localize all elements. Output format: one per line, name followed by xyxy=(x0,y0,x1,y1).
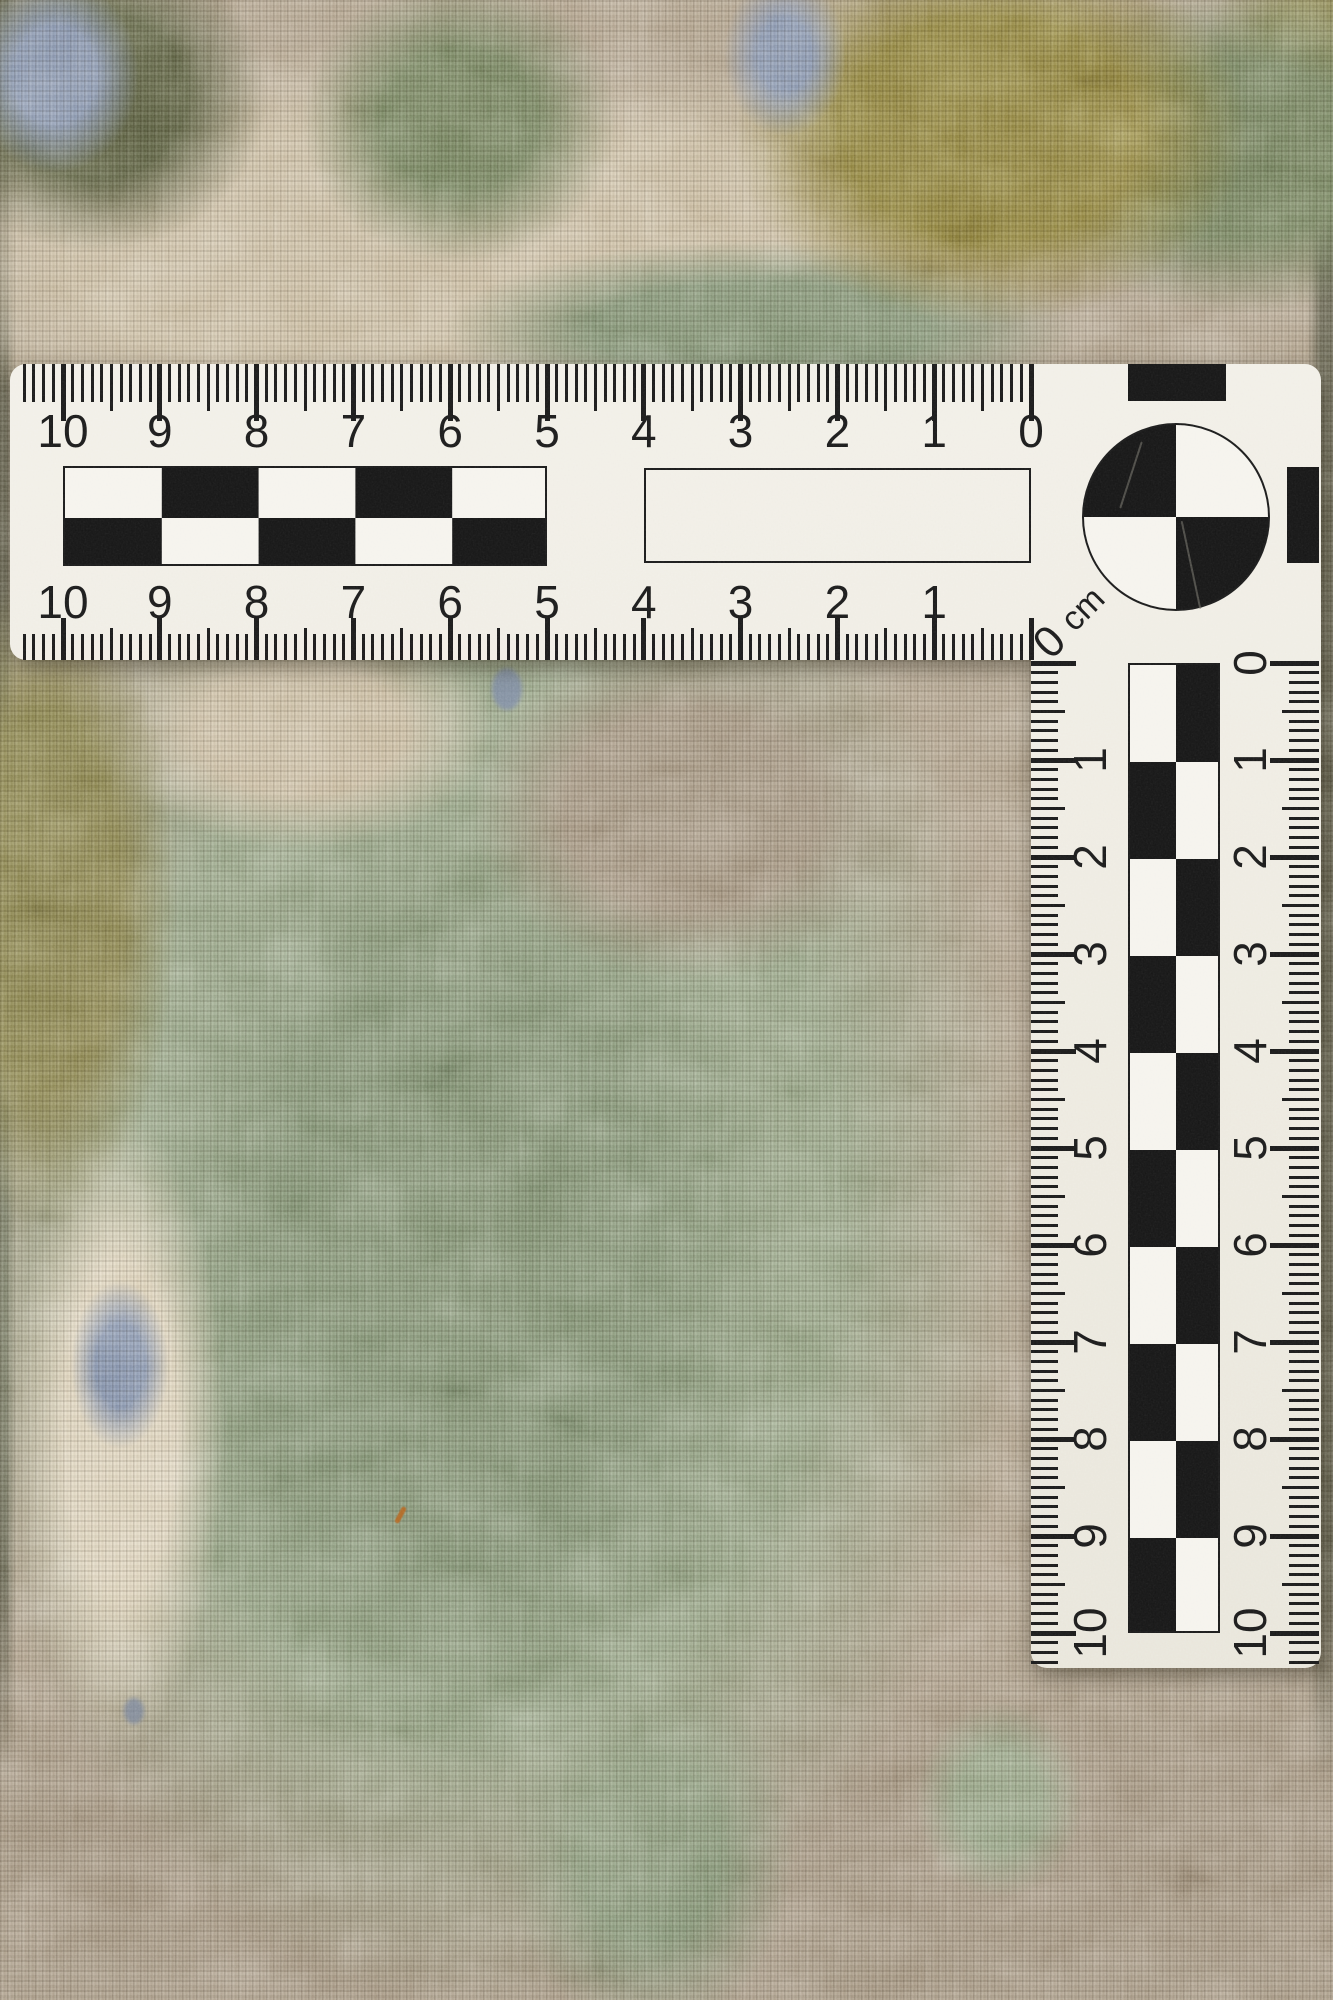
h-top-tick xyxy=(575,364,578,402)
h-bottom-tick xyxy=(207,628,210,660)
h-bottom-tick xyxy=(865,634,868,660)
v-left-tick xyxy=(1031,1176,1058,1179)
h-bottom-tick xyxy=(691,628,694,660)
photo-scene: 0 cm 10987654321010987654321123456789100… xyxy=(0,0,1333,2000)
h-top-tick xyxy=(623,364,626,402)
h-top-tick xyxy=(671,364,674,402)
h-top-tick xyxy=(788,364,791,411)
h-top-tick xyxy=(23,364,26,402)
h-bottom-number: 4 xyxy=(631,579,657,625)
h-top-number: 10 xyxy=(37,408,88,454)
h-bottom-tick xyxy=(788,628,791,660)
h-top-tick xyxy=(178,364,181,402)
v-left-tick xyxy=(1031,943,1058,946)
v-right-tick xyxy=(1282,1583,1319,1586)
v-left-tick xyxy=(1031,1525,1058,1528)
v-right-tick xyxy=(1289,923,1319,926)
h-top-tick xyxy=(168,364,171,402)
h-bottom-number: 7 xyxy=(341,579,367,625)
h-bottom-tick xyxy=(216,634,219,660)
h-top-tick xyxy=(207,364,210,411)
v-right-tick xyxy=(1289,1166,1319,1169)
h-bottom-tick xyxy=(875,634,878,660)
v-right-tick xyxy=(1289,1457,1319,1460)
h-top-tick xyxy=(817,364,820,402)
h-top-tick xyxy=(226,364,229,402)
v-right-tick xyxy=(1289,1176,1319,1179)
h-bottom-number: 1 xyxy=(921,579,947,625)
h-bottom-tick xyxy=(507,634,510,660)
v-right-tick xyxy=(1289,1059,1319,1062)
h-bottom-number: 2 xyxy=(825,579,851,625)
v-right-tick xyxy=(1289,1602,1319,1605)
h-top-number: 1 xyxy=(921,408,947,454)
h-bottom-tick xyxy=(516,634,519,660)
v-right-tick xyxy=(1289,1127,1319,1130)
h-bottom-tick xyxy=(71,634,74,660)
v-left-number: 6 xyxy=(1067,1232,1113,1258)
v-left-tick xyxy=(1031,1515,1058,1518)
h-top-tick xyxy=(507,364,510,402)
v-left-tick xyxy=(1031,700,1058,703)
h-bottom-tick xyxy=(149,634,152,660)
h-bottom-tick xyxy=(110,628,113,660)
h-top-tick xyxy=(565,364,568,402)
v-left-tick xyxy=(1031,778,1058,781)
v-left-tick xyxy=(1031,1554,1058,1557)
v-right-tick xyxy=(1289,836,1319,839)
v-right-number: 9 xyxy=(1227,1523,1273,1549)
h-bottom-tick xyxy=(391,634,394,660)
v-right-tick xyxy=(1282,1098,1319,1101)
v-left-tick xyxy=(1031,885,1058,888)
h-top-tick xyxy=(526,364,529,402)
h-top-tick xyxy=(604,364,607,402)
h-bottom-number: 10 xyxy=(37,579,88,625)
h-bottom-tick xyxy=(410,634,413,660)
v-right-tick xyxy=(1289,1408,1319,1411)
h-top-tick xyxy=(1000,364,1003,402)
v-right-number: 2 xyxy=(1227,844,1273,870)
v-right-tick xyxy=(1289,1108,1319,1111)
v-right-tick xyxy=(1289,700,1319,703)
v-right-tick xyxy=(1270,1437,1319,1442)
v-left-tick xyxy=(1031,972,1058,975)
h-top-tick xyxy=(913,364,916,402)
v-left-tick xyxy=(1031,1651,1058,1654)
v-left-tick xyxy=(1031,1622,1058,1625)
h-top-tick xyxy=(729,364,732,402)
v-left-tick xyxy=(1031,1350,1058,1353)
right-edge-calibration-rectangle xyxy=(1287,467,1319,563)
h-bottom-tick xyxy=(633,634,636,660)
h-bottom-tick xyxy=(623,634,626,660)
v-left-tick xyxy=(1031,768,1058,771)
v-right-tick xyxy=(1289,749,1319,752)
h-top-tick xyxy=(691,364,694,411)
h-bottom-tick xyxy=(236,634,239,660)
v-right-tick xyxy=(1282,1001,1319,1004)
v-left-tick xyxy=(1031,1127,1058,1130)
empty-outline-box xyxy=(644,468,1031,563)
h-top-tick xyxy=(32,364,35,402)
v-right-tick xyxy=(1270,1049,1319,1054)
h-bottom-tick xyxy=(778,634,781,660)
v-left-tick xyxy=(1031,788,1058,791)
v-right-tick xyxy=(1289,1593,1319,1596)
v-left-tick xyxy=(1031,1302,1058,1305)
v-right-number: 5 xyxy=(1227,1135,1273,1161)
h-bottom-tick xyxy=(981,628,984,660)
h-bottom-tick xyxy=(536,634,539,660)
h-bottom-tick xyxy=(962,634,965,660)
v-left-tick xyxy=(1031,1117,1058,1120)
v-left-tick xyxy=(1031,1408,1058,1411)
h-bottom-tick xyxy=(400,628,403,660)
v-right-tick xyxy=(1289,1205,1319,1208)
v-right-tick xyxy=(1289,1651,1319,1654)
h-bottom-tick xyxy=(91,634,94,660)
h-bottom-tick xyxy=(952,634,955,660)
v-right-tick xyxy=(1289,875,1319,878)
h-bottom-tick xyxy=(575,634,578,660)
v-right-tick xyxy=(1289,778,1319,781)
h-top-tick xyxy=(633,364,636,402)
h-top-tick xyxy=(778,364,781,402)
h-top-tick xyxy=(613,364,616,402)
h-top-tick xyxy=(942,364,945,402)
h-bottom-tick xyxy=(1020,634,1023,660)
v-right-tick xyxy=(1289,720,1319,723)
v-right-tick xyxy=(1289,826,1319,829)
v-right-tick xyxy=(1289,1447,1319,1450)
v-right-tick xyxy=(1289,1282,1319,1285)
v-right-tick xyxy=(1289,1321,1319,1324)
v-right-tick xyxy=(1289,1496,1319,1499)
h-bottom-tick xyxy=(904,634,907,660)
v-right-number: 6 xyxy=(1227,1232,1273,1258)
h-top-number: 0 xyxy=(1018,408,1044,454)
h-bottom-tick xyxy=(342,634,345,660)
v-left-tick xyxy=(1031,1011,1058,1014)
v-left-tick xyxy=(1031,836,1058,839)
h-top-tick xyxy=(381,364,384,402)
v-left-tick xyxy=(1031,1263,1058,1266)
v-left-tick xyxy=(1031,661,1076,666)
h-bottom-tick xyxy=(971,634,974,660)
h-bottom-tick xyxy=(478,634,481,660)
v-left-number: 2 xyxy=(1067,844,1113,870)
v-right-tick xyxy=(1282,710,1319,713)
v-right-tick xyxy=(1289,1137,1319,1140)
h-top-tick xyxy=(458,364,461,402)
v-left-number: 1 xyxy=(1067,747,1113,773)
h-bottom-tick xyxy=(584,634,587,660)
v-left-tick xyxy=(1031,1292,1065,1295)
h-bottom-tick xyxy=(139,634,142,660)
v-right-tick xyxy=(1270,1146,1319,1151)
h-top-tick xyxy=(758,364,761,402)
h-top-tick xyxy=(720,364,723,402)
v-right-tick xyxy=(1289,914,1319,917)
v-right-tick xyxy=(1289,1360,1319,1363)
h-top-tick xyxy=(120,364,123,402)
h-top-tick xyxy=(274,364,277,402)
v-right-tick xyxy=(1289,817,1319,820)
v-right-tick xyxy=(1270,1631,1319,1636)
h-top-tick xyxy=(497,364,500,411)
h-top-tick xyxy=(371,364,374,402)
v-left-tick xyxy=(1031,1224,1058,1227)
v-right-tick xyxy=(1289,1088,1319,1091)
v-left-tick xyxy=(1031,904,1065,907)
h-top-tick xyxy=(904,364,907,402)
v-right-tick xyxy=(1289,1525,1319,1528)
v-left-tick xyxy=(1031,729,1058,732)
v-left-number: 5 xyxy=(1067,1135,1113,1161)
vertical-checkerboard-band xyxy=(1128,663,1220,1633)
v-right-tick xyxy=(1289,1564,1319,1567)
v-left-tick xyxy=(1031,710,1065,713)
h-top-tick xyxy=(516,364,519,402)
h-bottom-tick xyxy=(604,634,607,660)
v-left-number: 3 xyxy=(1067,941,1113,967)
v-left-tick xyxy=(1031,1593,1058,1596)
v-right-tick xyxy=(1289,1399,1319,1402)
h-top-tick xyxy=(797,364,800,402)
v-left-tick xyxy=(1031,1573,1058,1576)
v-right-tick xyxy=(1282,1389,1319,1392)
v-left-tick xyxy=(1031,1564,1058,1567)
v-left-tick xyxy=(1031,1214,1058,1217)
v-left-tick xyxy=(1031,826,1058,829)
v-left-tick xyxy=(1031,1360,1058,1363)
v-right-tick xyxy=(1289,1515,1319,1518)
v-left-tick xyxy=(1031,681,1058,684)
v-right-tick xyxy=(1289,1476,1319,1479)
v-right-tick xyxy=(1289,894,1319,897)
h-top-tick xyxy=(52,364,55,402)
v-left-tick xyxy=(1031,1185,1058,1188)
h-top-tick xyxy=(710,364,713,402)
h-top-tick xyxy=(391,364,394,402)
h-top-tick xyxy=(681,364,684,402)
h-bottom-tick xyxy=(178,634,181,660)
v-left-number: 4 xyxy=(1067,1038,1113,1064)
h-top-tick xyxy=(884,364,887,411)
h-bottom-number: 8 xyxy=(244,579,270,625)
h-bottom-number: 6 xyxy=(437,579,463,625)
h-bottom-tick xyxy=(594,628,597,660)
h-bottom-tick xyxy=(274,634,277,660)
h-top-tick xyxy=(875,364,878,402)
v-right-tick xyxy=(1282,904,1319,907)
v-right-tick xyxy=(1270,1534,1319,1539)
v-left-tick xyxy=(1031,1205,1058,1208)
v-left-tick xyxy=(1031,1467,1058,1470)
h-top-tick xyxy=(584,364,587,402)
h-bottom-tick xyxy=(100,634,103,660)
v-right-tick xyxy=(1270,855,1319,860)
h-bottom-tick xyxy=(894,634,897,660)
h-bottom-tick xyxy=(565,634,568,660)
h-bottom-tick xyxy=(913,634,916,660)
h-top-tick xyxy=(700,364,703,402)
h-bottom-tick xyxy=(468,634,471,660)
h-top-tick xyxy=(826,364,829,402)
v-left-number: 8 xyxy=(1067,1426,1113,1452)
h-bottom-tick xyxy=(197,634,200,660)
h-top-tick xyxy=(81,364,84,402)
v-left-tick xyxy=(1031,894,1058,897)
h-top-number: 6 xyxy=(437,408,463,454)
h-bottom-tick xyxy=(129,634,132,660)
h-top-number: 4 xyxy=(631,408,657,454)
v-right-tick xyxy=(1270,758,1319,763)
horizontal-checkerboard-band xyxy=(63,466,547,566)
h-bottom-tick xyxy=(42,634,45,660)
h-bottom-tick xyxy=(487,634,490,660)
h-bottom-tick xyxy=(855,634,858,660)
h-top-tick xyxy=(362,364,365,402)
v-left-tick xyxy=(1031,1088,1058,1091)
v-left-tick xyxy=(1031,914,1058,917)
h-bottom-tick xyxy=(187,634,190,660)
h-top-tick xyxy=(323,364,326,402)
h-top-tick xyxy=(420,364,423,402)
v-right-tick xyxy=(1289,1331,1319,1334)
h-bottom-tick xyxy=(32,634,35,660)
v-left-tick xyxy=(1031,1001,1065,1004)
h-bottom-tick xyxy=(81,634,84,660)
h-top-tick xyxy=(923,364,926,402)
v-left-tick xyxy=(1031,1544,1058,1547)
v-right-tick xyxy=(1282,1292,1319,1295)
v-left-number: 9 xyxy=(1067,1523,1113,1549)
h-bottom-tick xyxy=(265,634,268,660)
v-right-tick xyxy=(1289,1573,1319,1576)
v-left-tick xyxy=(1031,720,1058,723)
v-left-tick xyxy=(1031,1428,1058,1431)
v-left-tick xyxy=(1031,1641,1058,1644)
v-left-tick xyxy=(1031,1612,1058,1615)
h-bottom-tick xyxy=(1010,634,1013,660)
h-bottom-tick xyxy=(168,634,171,660)
h-bottom-tick xyxy=(439,634,442,660)
h-top-tick xyxy=(71,364,74,402)
v-right-tick xyxy=(1289,1661,1319,1664)
h-top-tick xyxy=(342,364,345,402)
v-left-tick xyxy=(1031,1496,1058,1499)
v-right-number: 4 xyxy=(1227,1038,1273,1064)
h-top-tick xyxy=(129,364,132,402)
h-bottom-number: 9 xyxy=(147,579,173,625)
top-edge-calibration-rectangle xyxy=(1128,364,1226,401)
v-left-number: 7 xyxy=(1067,1329,1113,1355)
h-bottom-tick xyxy=(555,634,558,660)
h-bottom-tick xyxy=(768,634,771,660)
h-bottom-tick xyxy=(429,634,432,660)
h-top-tick xyxy=(265,364,268,402)
h-top-tick xyxy=(429,364,432,402)
h-top-tick xyxy=(894,364,897,402)
v-left-tick xyxy=(1031,991,1058,994)
h-top-tick xyxy=(42,364,45,402)
v-right-tick xyxy=(1289,1273,1319,1276)
v-left-tick xyxy=(1031,1166,1058,1169)
v-right-tick xyxy=(1270,952,1319,957)
v-left-tick xyxy=(1031,1020,1058,1023)
v-right-number: 10 xyxy=(1227,1607,1273,1658)
h-top-tick xyxy=(478,364,481,402)
v-left-tick xyxy=(1031,1661,1058,1664)
v-right-tick xyxy=(1289,671,1319,674)
h-bottom-tick xyxy=(458,634,461,660)
v-right-tick xyxy=(1289,1641,1319,1644)
h-top-tick xyxy=(855,364,858,402)
h-top-tick xyxy=(865,364,868,402)
v-left-tick xyxy=(1031,1583,1065,1586)
v-right-tick xyxy=(1289,681,1319,684)
h-bottom-tick xyxy=(381,634,384,660)
h-top-tick xyxy=(468,364,471,402)
v-left-tick xyxy=(1031,797,1058,800)
v-left-tick xyxy=(1031,1069,1058,1072)
v-right-tick xyxy=(1289,1612,1319,1615)
h-top-tick xyxy=(410,364,413,402)
v-right-tick xyxy=(1289,768,1319,771)
v-left-tick xyxy=(1031,1195,1065,1198)
v-right-tick xyxy=(1282,1195,1319,1198)
v-right-tick xyxy=(1289,797,1319,800)
h-bottom-tick xyxy=(681,634,684,660)
h-bottom-tick xyxy=(497,628,500,660)
v-left-tick xyxy=(1031,875,1058,878)
v-right-tick xyxy=(1289,846,1319,849)
v-right-tick xyxy=(1289,1418,1319,1421)
h-bottom-tick xyxy=(729,634,732,660)
h-top-tick xyxy=(139,364,142,402)
v-left-tick xyxy=(1031,865,1058,868)
h-bottom-tick xyxy=(52,634,55,660)
h-bottom-tick xyxy=(333,634,336,660)
v-right-number: 7 xyxy=(1227,1329,1273,1355)
v-left-tick xyxy=(1031,962,1058,965)
h-top-tick xyxy=(1010,364,1013,402)
v-left-tick xyxy=(1031,1273,1058,1276)
v-left-tick xyxy=(1031,1156,1058,1159)
h-top-tick xyxy=(284,364,287,402)
h-top-tick xyxy=(536,364,539,402)
l-shaped-cm-scale: 0 cm 10987654321010987654321123456789100… xyxy=(0,0,1333,2000)
v-right-tick xyxy=(1289,1040,1319,1043)
h-top-tick xyxy=(313,364,316,402)
v-right-tick xyxy=(1289,1030,1319,1033)
v-right-number: 1 xyxy=(1227,747,1273,773)
h-top-tick xyxy=(662,364,665,402)
h-top-tick xyxy=(981,364,984,411)
h-top-tick xyxy=(807,364,810,402)
v-right-tick xyxy=(1289,1069,1319,1072)
v-left-tick xyxy=(1031,739,1058,742)
v-left-tick xyxy=(1031,1321,1058,1324)
v-right-tick xyxy=(1289,1020,1319,1023)
v-left-tick xyxy=(1031,1370,1058,1373)
v-left-tick xyxy=(1031,1098,1065,1101)
v-left-tick xyxy=(1031,1282,1058,1285)
v-left-tick xyxy=(1031,817,1058,820)
v-right-tick xyxy=(1289,1117,1319,1120)
